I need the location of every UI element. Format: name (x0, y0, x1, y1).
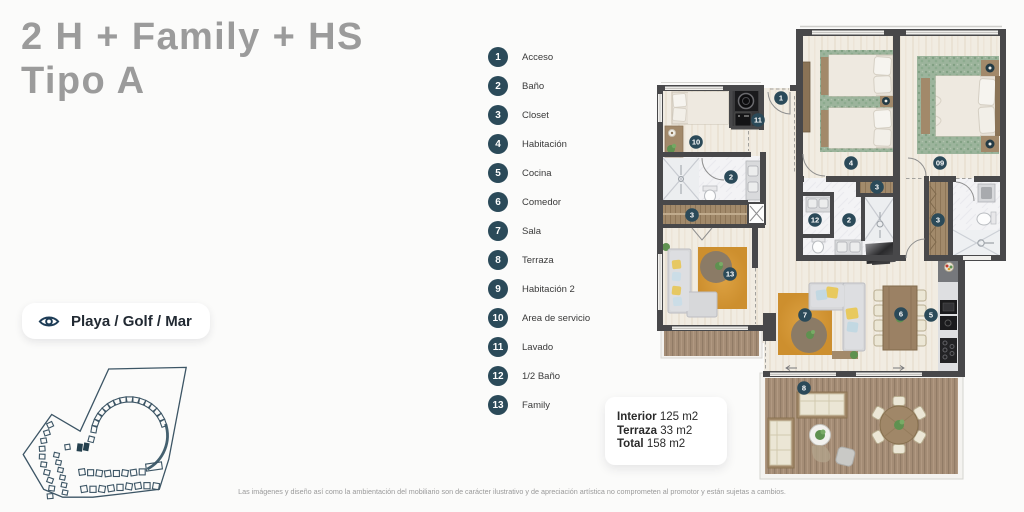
svg-text:3: 3 (875, 183, 879, 192)
svg-text:1: 1 (779, 94, 783, 103)
svg-text:10: 10 (692, 138, 700, 147)
svg-text:2: 2 (847, 216, 851, 225)
svg-text:3: 3 (690, 211, 694, 220)
svg-text:5: 5 (929, 311, 933, 320)
svg-text:7: 7 (803, 311, 807, 320)
svg-text:13: 13 (726, 270, 734, 279)
svg-text:8: 8 (802, 384, 806, 393)
svg-text:6: 6 (899, 310, 903, 319)
svg-text:11: 11 (754, 116, 762, 125)
svg-text:12: 12 (811, 216, 819, 225)
svg-text:2: 2 (729, 173, 733, 182)
svg-text:3: 3 (936, 216, 940, 225)
svg-text:09: 09 (936, 159, 944, 168)
